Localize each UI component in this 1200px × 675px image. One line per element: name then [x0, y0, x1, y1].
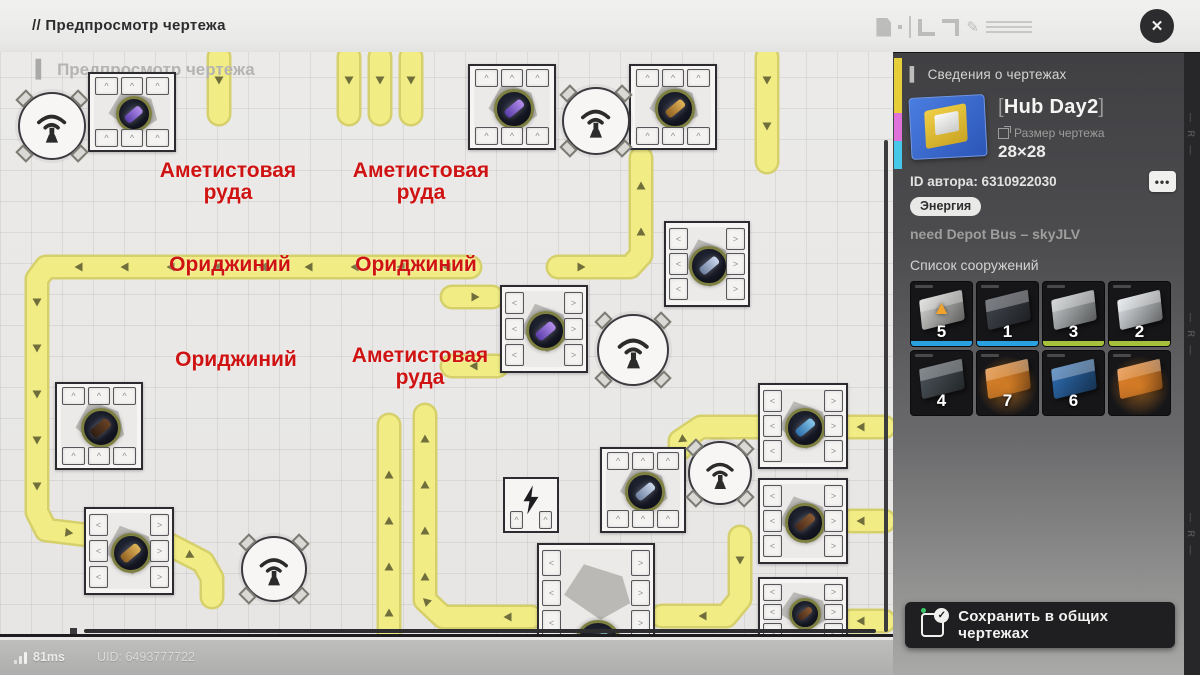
- antenna-icon: [606, 323, 660, 377]
- divider-icon: [909, 16, 911, 38]
- blue-ore-icon: [785, 408, 825, 448]
- miner-amethyst: ^^^^^^: [88, 72, 176, 152]
- resource-label: Ориджиний: [175, 349, 297, 371]
- structure-item-5[interactable]: 4: [910, 350, 973, 416]
- gold-ore-icon: [655, 89, 695, 129]
- structure-list-header: Список сооружений: [910, 257, 1174, 273]
- resource-label: Аметистоваяруда: [353, 160, 489, 204]
- blueprint-size-value: 28×28: [998, 142, 1105, 162]
- author-note: need Depot Bus – skyJLV: [910, 226, 1174, 242]
- power-node: ^^: [503, 477, 559, 533]
- signal-tower: [562, 87, 630, 155]
- structure-count: 3: [1043, 322, 1104, 342]
- blueprint-title: [Hub Day2]: [998, 96, 1105, 119]
- stripe-cyan: [894, 141, 902, 169]
- resource-label: Аметистоваяруда: [352, 345, 488, 389]
- miner-gold: <<<>>>: [84, 507, 174, 595]
- resource-label: Ориджиний: [355, 254, 477, 276]
- structure-item-7[interactable]: 6: [1042, 350, 1105, 416]
- lightning-icon: [522, 485, 541, 514]
- map-viewport[interactable]: ▍Предпросмотр чертежа ^^^^^^^^^^^^^^^^^^…: [0, 52, 893, 636]
- signal-tower: [688, 441, 752, 505]
- brown-ore-icon: [785, 503, 825, 543]
- author-id: ID автора: 6310922030: [910, 174, 1174, 189]
- amethyst-ore-icon: [526, 311, 566, 351]
- more-options-button[interactable]: •••: [1149, 171, 1176, 192]
- miner-slate: ^^^^^^: [600, 447, 686, 533]
- warning-triangle-icon: ▲: [932, 298, 951, 320]
- close-icon: ✕: [1151, 17, 1164, 35]
- miner-gold: ^^^^^^: [629, 64, 717, 150]
- panel-header: ▍Сведения о чертежах: [910, 67, 1174, 83]
- tile-corner-mark: [981, 285, 999, 288]
- tile-corner-mark: [1047, 354, 1065, 357]
- ellipsis-icon: •••: [1155, 175, 1171, 189]
- stripe-magenta: [894, 113, 902, 141]
- top-bar: // Предпросмотр чертежа ✎ ✕: [0, 0, 1200, 52]
- blueprint-thumbnail: [908, 94, 987, 160]
- structure-item-8[interactable]: [1108, 350, 1171, 416]
- antenna-icon: [249, 544, 299, 594]
- dot-icon: [898, 25, 902, 29]
- ping-value: 81ms: [33, 650, 65, 664]
- miner-brown: <<<>>>: [758, 577, 848, 636]
- signal-tower: [18, 92, 86, 160]
- bracket-icon: [918, 19, 935, 36]
- structure-item-6[interactable]: 7: [976, 350, 1039, 416]
- structure-count: 7: [977, 391, 1038, 411]
- miner-slate: <<<>>>: [664, 221, 750, 307]
- structure-count: 4: [911, 391, 972, 411]
- tile-corner-mark: [1047, 285, 1065, 288]
- energy-tag: Энергия: [910, 197, 981, 216]
- blueprint-info-panel: — R —— R —— R — ▍Сведения о чертежах [Hu…: [893, 53, 1200, 675]
- save-button-label: Сохранить в общих чертежах: [958, 608, 1175, 642]
- page-title: // Предпросмотр чертежа: [32, 17, 226, 34]
- amethyst-ore-icon: [494, 89, 534, 129]
- watermark-bar-icon: ▍: [36, 60, 49, 79]
- uid-value: UID: 6493777722: [97, 650, 195, 664]
- close-button[interactable]: ✕: [1140, 9, 1174, 43]
- save-icon: ✓: [921, 613, 944, 637]
- structure-list: ▲5 1 3 2 4 7 6: [910, 281, 1174, 416]
- gold-ore-icon: [111, 533, 151, 573]
- antenna-icon: [26, 100, 77, 151]
- tile-corner-mark: [915, 354, 933, 357]
- document-icon: [876, 18, 891, 37]
- blueprint-size-label: Размер чертежа: [998, 126, 1105, 140]
- top-bar-decoration: ✎: [876, 12, 1032, 42]
- brown-ore-icon: [789, 598, 821, 630]
- pencil-icon: ✎: [966, 18, 979, 36]
- slate-ore-icon: [625, 472, 665, 512]
- ping-signal-icon: [14, 652, 27, 664]
- miner-amethyst: <<<>>>: [500, 285, 588, 373]
- blueprint-preview-screen: ▍Предпросмотр чертежа ^^^^^^^^^^^^^^^^^^…: [0, 0, 1200, 675]
- miner-teal: <<<>>>: [537, 543, 655, 636]
- fine-print-decoration: [986, 21, 1032, 33]
- map-horizontal-scrollbar[interactable]: [84, 629, 876, 633]
- structure-count: 2: [1109, 322, 1170, 342]
- status-footer: 81ms UID: 6493777722: [0, 640, 893, 675]
- resource-label: Аметистоваяруда: [160, 160, 296, 204]
- antenna-icon: [696, 449, 744, 497]
- tile-corner-mark: [915, 285, 933, 288]
- signal-tower: [241, 536, 307, 602]
- slate-ore-icon: [689, 246, 729, 286]
- resource-label: Ориджиний: [169, 254, 291, 276]
- antenna-icon: [570, 95, 621, 146]
- stripe-yellow: [894, 58, 902, 113]
- map-bottom-border: [0, 634, 893, 637]
- sidebar-right-strip: — R —— R —— R —: [1184, 53, 1200, 675]
- size-icon: [998, 128, 1009, 139]
- darkbrown-ore-icon: [81, 408, 121, 448]
- tile-corner-mark: [1113, 285, 1131, 288]
- structure-item-4[interactable]: 2: [1108, 281, 1171, 347]
- miner-amethyst: ^^^^^^: [468, 64, 556, 150]
- save-to-shared-blueprints-button[interactable]: ✓ Сохранить в общих чертежах: [905, 602, 1175, 648]
- miner-brown: <<<>>>: [758, 478, 848, 564]
- structure-item-1[interactable]: ▲5: [910, 281, 973, 347]
- structure-item-2[interactable]: 1: [976, 281, 1039, 347]
- check-icon: ✓: [934, 608, 949, 623]
- structure-count: 6: [1043, 391, 1104, 411]
- miner-blue: <<<>>>: [758, 383, 848, 469]
- map-vertical-scrollbar[interactable]: [884, 140, 888, 632]
- miner-darkbrown: ^^^^^^: [55, 382, 143, 470]
- structure-item-3[interactable]: 3: [1042, 281, 1105, 347]
- structure-count: 1: [977, 322, 1038, 342]
- signal-tower: [597, 314, 669, 386]
- bracket-icon: [942, 19, 959, 36]
- structure-count: 5: [911, 322, 972, 342]
- glow-effect: [1109, 351, 1170, 415]
